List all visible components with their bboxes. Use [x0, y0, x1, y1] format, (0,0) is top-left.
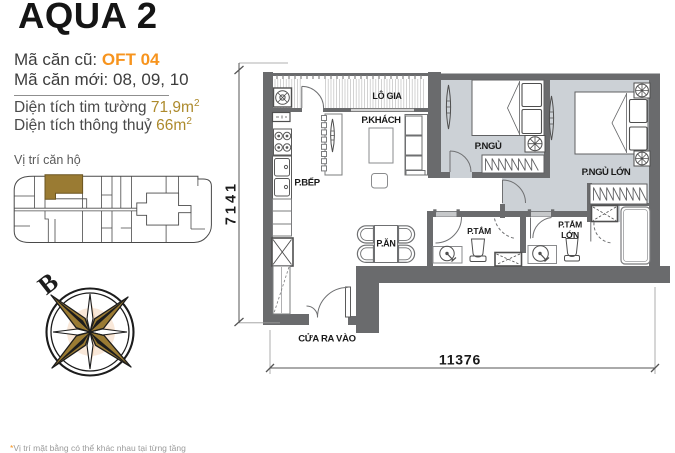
svg-text:P.TẮM: P.TẮM [467, 226, 491, 236]
svg-text:P.KHÁCH: P.KHÁCH [361, 115, 401, 126]
svg-text:P.BẾP: P.BẾP [294, 178, 320, 189]
svg-text:LÔ GIA: LÔ GIA [372, 90, 402, 101]
svg-text:11376: 11376 [439, 352, 481, 368]
svg-text:P.NGỦ LỚN: P.NGỦ LỚN [582, 166, 631, 178]
svg-text:P.TẮM: P.TẮM [558, 220, 582, 230]
svg-text:P.ĂN: P.ĂN [376, 239, 395, 249]
svg-text:LỚN: LỚN [561, 229, 579, 240]
svg-text:P.NGỦ: P.NGỦ [475, 140, 502, 152]
svg-text:B: B [32, 267, 64, 301]
svg-text:CỬA RA VÀO: CỬA RA VÀO [298, 333, 355, 345]
svg-text:7141: 7141 [224, 181, 240, 225]
